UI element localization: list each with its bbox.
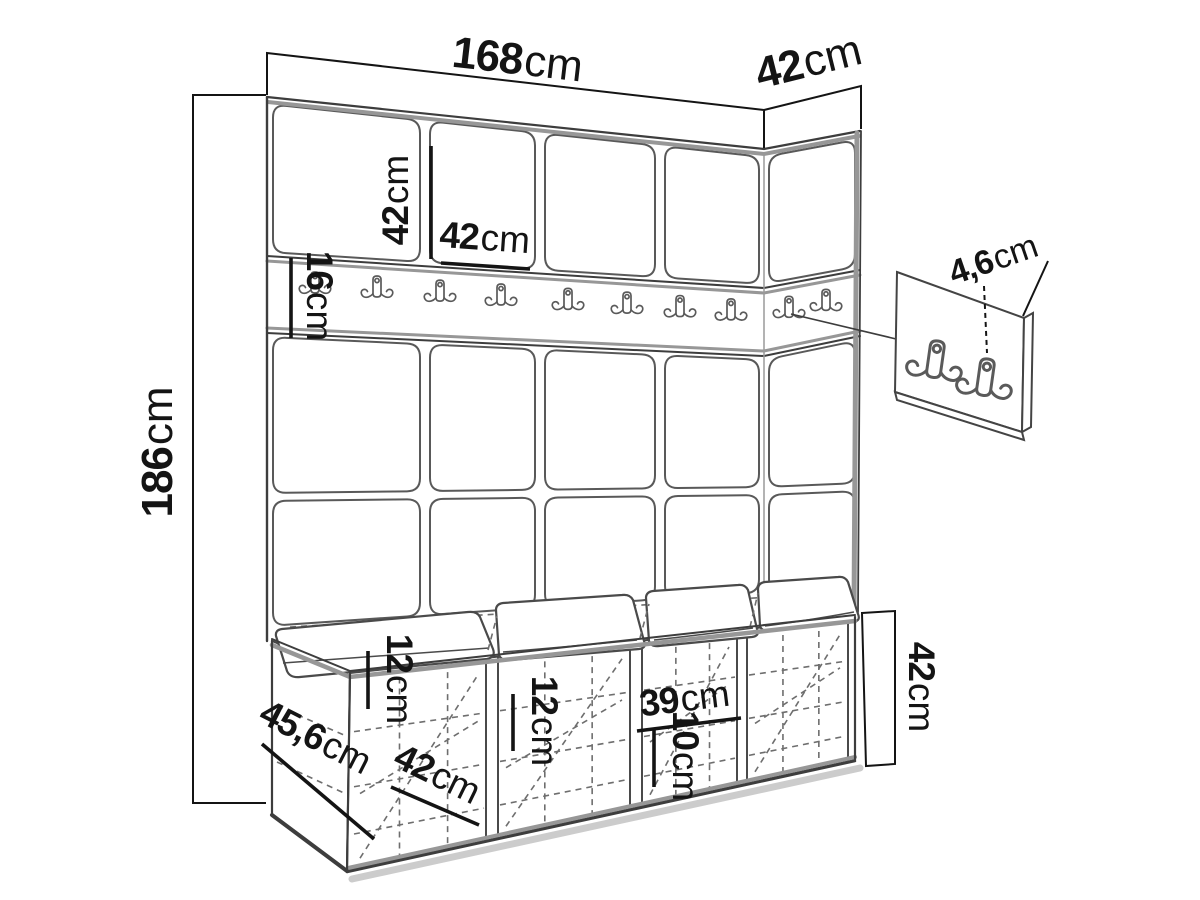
upholstered-panel [769,142,855,281]
bench-shelf-bottom-label: 10cm [665,711,706,801]
upholstered-panel [665,148,759,283]
coat-hook-icon [424,280,455,301]
hook-panel-front [895,272,1024,432]
unit-right-shade [854,133,857,612]
side-depth-label: 42cm [750,25,866,99]
total-width-label: 168cm [450,28,586,92]
coat-hook-icon [773,296,804,317]
upholstered-panel [665,356,759,488]
coat-hook-icon [552,288,583,309]
shoe-bench: 42cm 12cm 12cm 39cm 10cm 45,6cm 42cm [253,577,942,879]
bench-height-label: 42cm [901,642,942,732]
coat-hook-icon [611,292,642,313]
dimension-side-depth: 42cm [750,25,866,129]
upholstered-panel [273,338,420,493]
upholstered-panel-grid [273,106,855,625]
panel-height-label: 42cm [375,155,416,245]
hook-panel-side [1022,313,1033,432]
bench-shelf-middle-label: 12cm [524,676,565,766]
upholstered-panel [545,135,655,276]
panel-width-label: 42cm [438,214,531,261]
dimension-bench-height: 42cm [862,611,942,766]
upholstered-panel [430,498,535,614]
coat-hook-icon [715,299,746,320]
bench-shelf-top-label: 12cm [379,634,420,724]
coat-hook-icon [485,284,516,305]
bench-height-bracket [862,611,895,766]
coat-hook-icon [361,276,392,297]
diagram-canvas: 168cm 42cm 186cm 42cm 42cm 16cm [0,0,1200,900]
rail-height-label: 16cm [299,251,340,341]
coat-hook-icon [810,289,841,310]
dimension-total-height: 186cm [133,95,266,803]
upholstered-panel [545,350,655,489]
coat-hook-icon [664,296,695,317]
dimension-panel-height: 42cm [375,146,431,259]
upholstered-panel [273,499,420,625]
hook-panel-depth-label: 4,6cm [944,227,1043,293]
wall-unit [267,97,861,641]
upholstered-panel [545,496,655,606]
upholstered-panel [769,343,855,486]
total-height-label: 186cm [133,386,182,517]
upholstered-panel [665,495,759,598]
furniture-dimension-diagram: 168cm 42cm 186cm 42cm 42cm 16cm [0,0,1200,900]
upholstered-panel [430,345,535,491]
